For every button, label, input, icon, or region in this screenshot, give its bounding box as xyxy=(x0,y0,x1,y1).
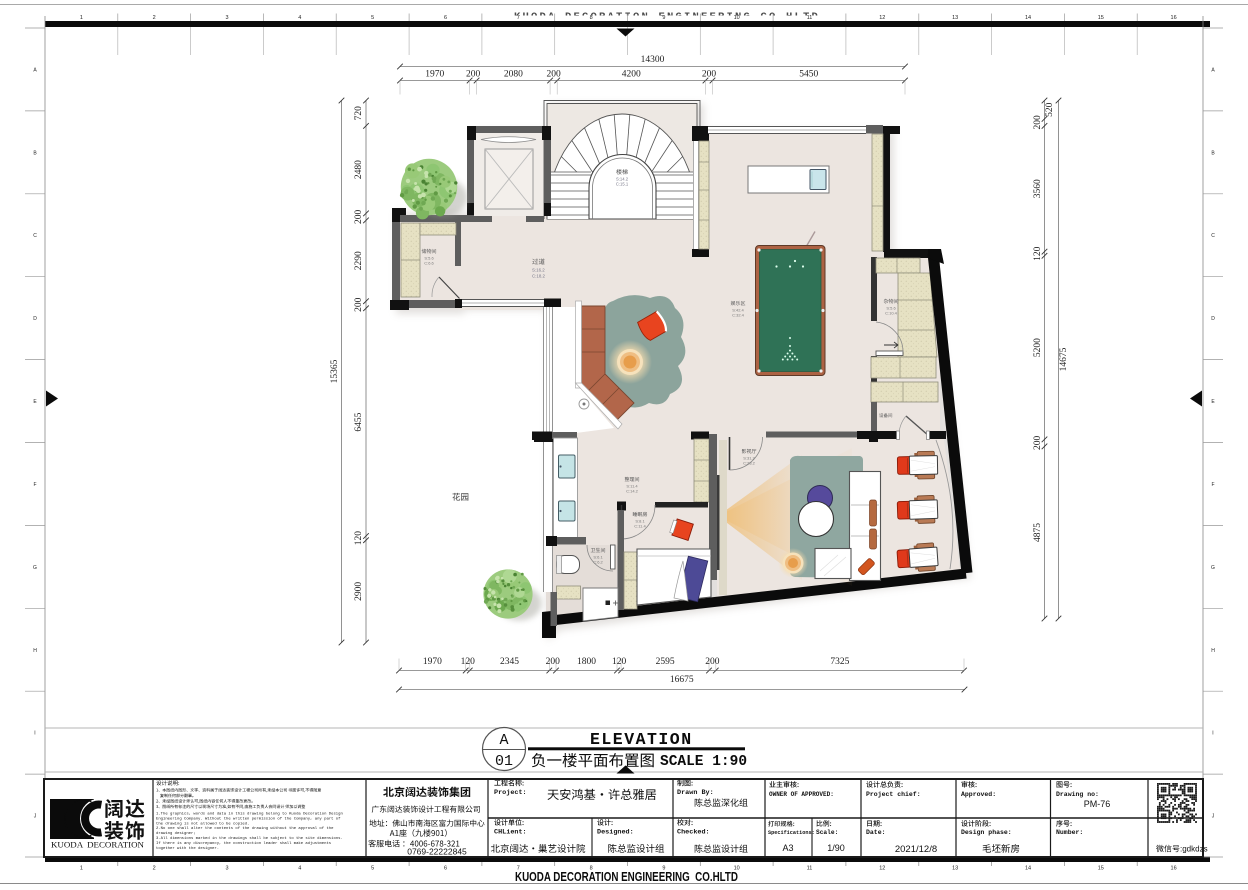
svg-text::gdkdzs: :gdkdzs xyxy=(1180,845,1208,854)
svg-text:C: C xyxy=(1211,233,1215,239)
svg-text:200: 200 xyxy=(1033,436,1043,451)
svg-text:I: I xyxy=(1212,731,1213,737)
svg-text:1/90: 1/90 xyxy=(827,843,845,853)
svg-text:120: 120 xyxy=(612,657,627,667)
svg-text:F: F xyxy=(33,482,36,488)
svg-text:4: 4 xyxy=(298,15,301,21)
svg-text:14: 14 xyxy=(1025,866,1031,872)
svg-text:the drawing is not allowed to: the drawing is not allowed to be copied. xyxy=(156,821,249,826)
svg-text:D: D xyxy=(33,316,37,322)
svg-text:2080: 2080 xyxy=(504,70,523,80)
svg-text:7325: 7325 xyxy=(830,657,849,667)
svg-text:01: 01 xyxy=(495,753,513,770)
svg-text:15: 15 xyxy=(1098,866,1104,872)
svg-text:OWNER OF APPROVED:: OWNER OF APPROVED: xyxy=(769,791,834,798)
svg-text:200: 200 xyxy=(546,657,561,667)
svg-text:200: 200 xyxy=(705,657,720,667)
svg-text:A: A xyxy=(499,732,508,749)
svg-text:14300: 14300 xyxy=(641,55,665,65)
svg-text:C:10.4: C:10.4 xyxy=(885,311,898,316)
svg-text:drawing designer;: drawing designer; xyxy=(156,831,196,836)
svg-text:Checked:: Checked: xyxy=(677,829,710,837)
svg-text:Project chief:: Project chief: xyxy=(866,791,921,798)
svg-text:SCALE 1:90: SCALE 1:90 xyxy=(660,754,747,770)
svg-text:1: 1 xyxy=(80,866,83,872)
svg-text:KUODA DECORATION ENGINEERING: KUODA DECORATION ENGINEERING CO.HLTD xyxy=(515,870,738,884)
svg-text:16: 16 xyxy=(1171,866,1177,872)
svg-text:Design phase:: Design phase: xyxy=(961,829,1012,836)
svg-text:4200: 4200 xyxy=(622,70,641,80)
svg-text:2345: 2345 xyxy=(500,657,519,667)
svg-text:0769-22222845: 0769-22222845 xyxy=(407,847,467,857)
svg-text:6: 6 xyxy=(444,866,447,872)
svg-text:8: 8 xyxy=(590,15,593,21)
svg-text:3: 3 xyxy=(225,15,228,21)
svg-text:ELEVATION: ELEVATION xyxy=(590,730,693,749)
svg-text:13: 13 xyxy=(952,15,958,21)
svg-text:together with the designer.: together with the designer. xyxy=(156,846,219,851)
svg-text:C:11.4: C:11.4 xyxy=(634,524,646,529)
svg-text:120: 120 xyxy=(461,657,476,667)
svg-text:1800: 1800 xyxy=(577,657,596,667)
svg-text:5450: 5450 xyxy=(799,70,818,80)
svg-text:7: 7 xyxy=(517,15,520,21)
svg-text:4875: 4875 xyxy=(1033,523,1043,542)
svg-text:200: 200 xyxy=(354,297,364,312)
svg-text:15365: 15365 xyxy=(330,359,340,383)
svg-text:2021/12/8: 2021/12/8 xyxy=(895,844,937,855)
svg-text:200: 200 xyxy=(1033,115,1043,129)
svg-text:720: 720 xyxy=(354,106,364,121)
svg-text:C:6.2: C:6.2 xyxy=(593,560,603,565)
svg-text:520: 520 xyxy=(1045,102,1055,117)
svg-text:200: 200 xyxy=(354,210,364,225)
svg-text:2: 2 xyxy=(153,15,156,21)
svg-text:H: H xyxy=(1211,648,1215,654)
svg-text:16: 16 xyxy=(1171,15,1177,21)
svg-text:Drawn By:: Drawn By: xyxy=(677,789,714,797)
svg-text:Approved:: Approved: xyxy=(961,791,996,798)
svg-text:15: 15 xyxy=(1098,15,1104,21)
svg-text:200: 200 xyxy=(546,70,561,80)
svg-text:200: 200 xyxy=(702,70,717,80)
svg-text:C: C xyxy=(33,233,37,239)
svg-text:PM-76: PM-76 xyxy=(1084,799,1111,809)
svg-text:C:6.6: C:6.6 xyxy=(424,261,434,266)
svg-text:200: 200 xyxy=(466,70,481,80)
svg-text:If there is any discrepancy, t: If there is any discrepancy, the constru… xyxy=(156,841,332,846)
svg-text:H: H xyxy=(33,648,37,654)
svg-text:5: 5 xyxy=(371,866,374,872)
svg-text:120: 120 xyxy=(354,531,364,546)
svg-text:Number:: Number: xyxy=(1056,829,1083,836)
svg-text:2.No one shall alter the conte: 2.No one shall alter the contents of the… xyxy=(156,826,334,831)
svg-text:2595: 2595 xyxy=(656,657,675,667)
svg-text:120: 120 xyxy=(1033,246,1043,261)
svg-text:11: 11 xyxy=(807,15,813,21)
svg-text:Scale:: Scale: xyxy=(816,829,838,836)
svg-text:1: 1 xyxy=(80,15,83,21)
svg-text:C:23.2: C:23.2 xyxy=(743,461,756,466)
svg-text:3: 3 xyxy=(225,866,228,872)
svg-text:2: 2 xyxy=(153,866,156,872)
svg-text:Date:: Date: xyxy=(866,829,886,836)
svg-text:14: 14 xyxy=(1025,15,1031,21)
svg-text:4: 4 xyxy=(298,866,301,872)
svg-text:C:14.2: C:14.2 xyxy=(626,489,639,494)
svg-text:1970: 1970 xyxy=(423,657,442,667)
svg-text:12: 12 xyxy=(879,866,885,872)
svg-text:Drawing no:: Drawing no: xyxy=(1056,791,1099,798)
svg-text:I: I xyxy=(34,731,35,737)
svg-text:1.The graphics, words and data: 1.The graphics, words and data in this d… xyxy=(156,812,343,817)
svg-text:5: 5 xyxy=(371,15,374,21)
svg-text:16675: 16675 xyxy=(670,675,694,685)
svg-text:KUODA DECORATION: KUODA DECORATION xyxy=(51,840,145,850)
svg-text:Specifications:: Specifications: xyxy=(768,830,815,836)
svg-text:3.All dimensions marked in the: 3.All dimensions marked in the drawings … xyxy=(156,836,343,841)
svg-text:2290: 2290 xyxy=(354,251,364,270)
svg-text:5200: 5200 xyxy=(1033,338,1043,357)
svg-text:2900: 2900 xyxy=(354,582,364,601)
svg-text:Engineering Company. Without t: Engineering Company. Without the written… xyxy=(156,816,341,821)
svg-text:14675: 14675 xyxy=(1059,347,1069,371)
svg-text:D: D xyxy=(1211,316,1215,322)
svg-text:2480: 2480 xyxy=(354,160,364,179)
svg-text:A3: A3 xyxy=(782,843,793,853)
svg-text:F: F xyxy=(1211,482,1214,488)
svg-text:6455: 6455 xyxy=(354,412,364,431)
svg-text:3560: 3560 xyxy=(1033,179,1043,198)
svg-text:C:32.4: C:32.4 xyxy=(732,313,745,318)
svg-text:G: G xyxy=(33,565,37,571)
svg-text:1970: 1970 xyxy=(425,70,444,80)
svg-text:6: 6 xyxy=(444,15,447,21)
svg-text:Designed:: Designed: xyxy=(597,829,634,837)
svg-text:11: 11 xyxy=(807,866,813,872)
svg-text:G: G xyxy=(1211,565,1215,571)
svg-text:Project:: Project: xyxy=(494,789,527,797)
svg-text:10: 10 xyxy=(734,15,740,21)
svg-text:13: 13 xyxy=(952,866,958,872)
svg-text:C:15.1: C:15.1 xyxy=(616,182,629,187)
svg-text:9: 9 xyxy=(662,15,665,21)
svg-text:S:16.2: S:16.2 xyxy=(532,268,545,273)
svg-text:CHLient:: CHLient: xyxy=(494,829,527,837)
svg-text:12: 12 xyxy=(879,15,885,21)
svg-text:C:18.2: C:18.2 xyxy=(532,274,545,279)
